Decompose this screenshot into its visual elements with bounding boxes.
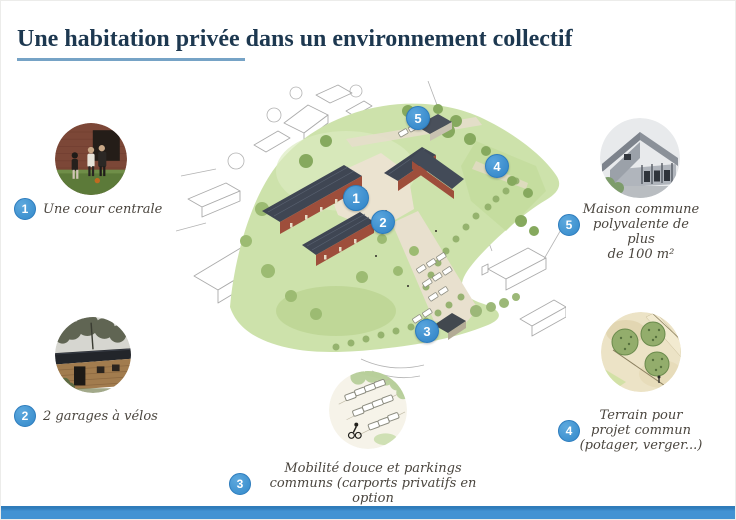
page-title: Une habitation privée dans un environnem… [17,25,717,53]
legend-badge-2: 2 [14,405,36,427]
legend-badge-5-number: 5 [566,218,573,232]
central-courtyard-photo [55,123,127,195]
map-marker-1-number: 1 [352,190,360,206]
bike-garage-photo [55,317,131,393]
legend-badge-4-number: 4 [566,424,573,438]
map-marker-4: 4 [485,154,509,178]
title-underline [17,58,245,61]
map-marker-2: 2 [371,210,395,234]
legend-label-common-land: Terrain pour projet commun (potager, ver… [579,408,703,453]
map-marker-5-number: 5 [414,111,421,126]
map-marker-2-number: 2 [379,215,386,230]
common-land-sketch [601,312,681,392]
legend-badge-1: 1 [14,198,36,220]
legend-label-common-house: Maison commune polyvalente de plus de 10… [579,202,703,262]
map-marker-5: 5 [406,106,430,130]
site-plan-illustration [176,81,566,396]
legend-badge-3-number: 3 [237,477,244,491]
legend-badge-4: 4 [558,420,580,442]
map-marker-3-number: 3 [423,324,430,339]
bottom-accent-bar [1,506,736,519]
infographic-page: Une habitation privée dans un environnem… [0,0,736,520]
map-marker-4-number: 4 [493,159,500,174]
legend-badge-5: 5 [558,214,580,236]
soft-mobility-parking-sketch [329,371,407,449]
legend-label-bike-garages: 2 garages à vélos [43,409,193,424]
ball [95,178,100,183]
legend-badge-2-number: 2 [22,409,29,423]
legend-label-central-courtyard: Une cour centrale [43,202,193,217]
legend-badge-1-number: 1 [22,202,29,216]
map-marker-3: 3 [415,319,439,343]
map-marker-1: 1 [343,185,369,211]
legend-badge-3: 3 [229,473,251,495]
common-house-photo [600,118,680,198]
